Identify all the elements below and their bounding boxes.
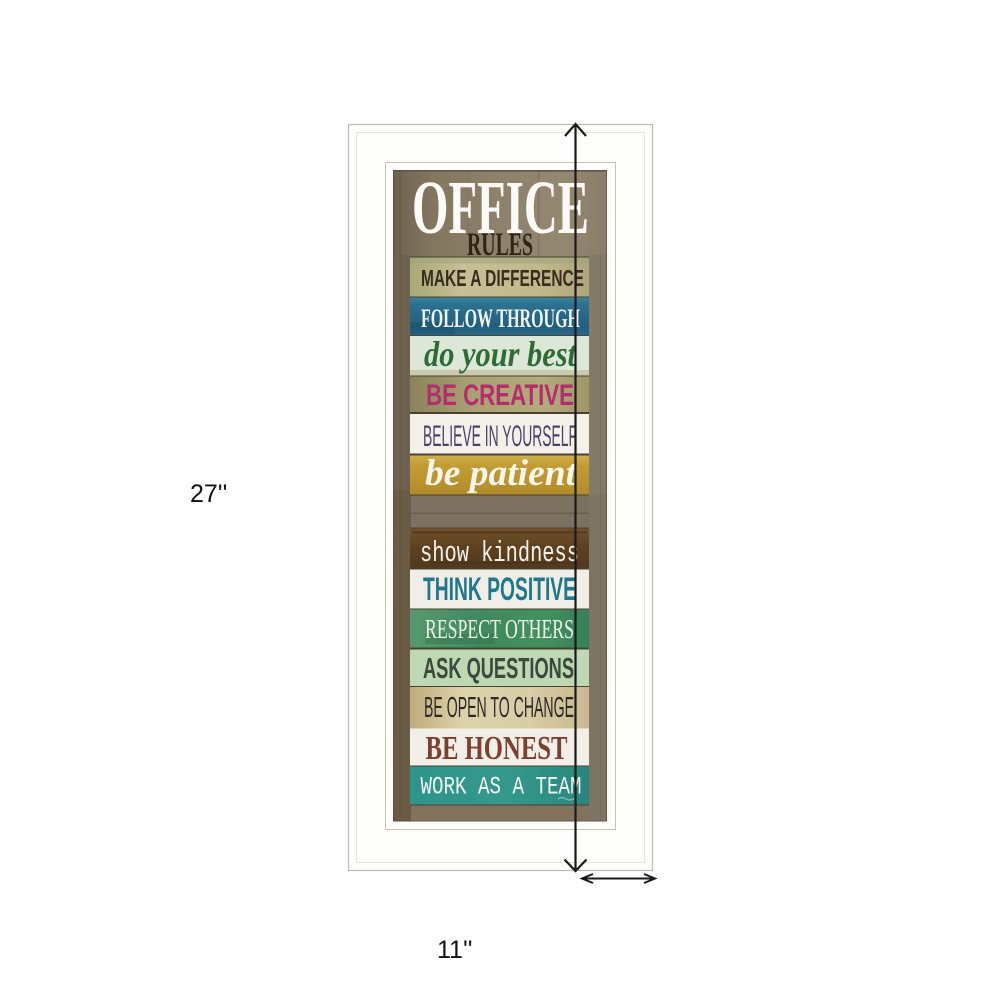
svg-text:MAKE A DIFFERENCE: MAKE A DIFFERENCE — [421, 265, 584, 291]
svg-text:THINK POSITIVE: THINK POSITIVE — [423, 571, 576, 607]
svg-text:show kindness: show kindness — [420, 537, 579, 570]
svg-text:do your best: do your best — [424, 334, 577, 374]
svg-text:ASK QUESTIONS: ASK QUESTIONS — [423, 653, 574, 685]
svg-text:WORK AS A TEAM: WORK AS A TEAM — [421, 773, 582, 802]
svg-text:11'': 11'' — [437, 936, 473, 964]
svg-text:BE HONEST: BE HONEST — [426, 730, 568, 767]
svg-text:BELIEVE IN YOURSELF: BELIEVE IN YOURSELF — [423, 420, 577, 453]
svg-text:BE OPEN TO CHANGE: BE OPEN TO CHANGE — [424, 692, 574, 724]
svg-text:BE CREATIVE: BE CREATIVE — [426, 379, 574, 412]
svg-text:be patient: be patient — [425, 453, 578, 494]
svg-text:FOLLOW THROUGH: FOLLOW THROUGH — [421, 304, 580, 333]
svg-text:27'': 27'' — [190, 480, 227, 508]
svg-text:RESPECT OTHERS: RESPECT OTHERS — [425, 614, 574, 644]
